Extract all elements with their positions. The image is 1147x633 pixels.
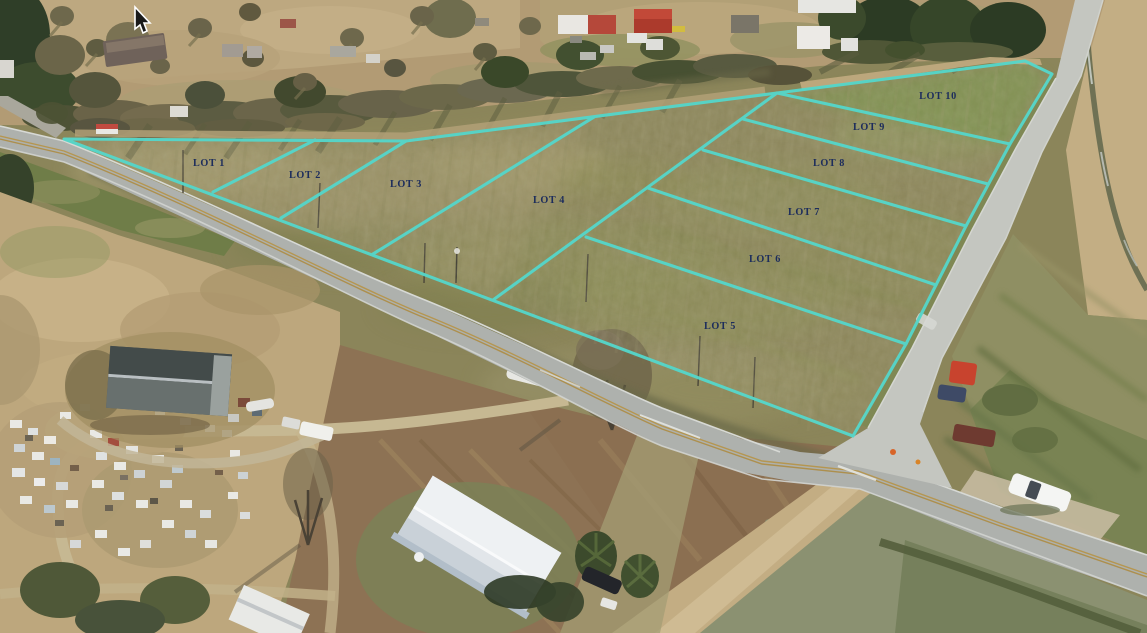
svg-text:LOT 10: LOT 10 (919, 91, 957, 102)
svg-text:LOT 4: LOT 4 (533, 195, 565, 206)
svg-text:LOT 6: LOT 6 (749, 254, 781, 265)
svg-text:LOT 8: LOT 8 (813, 158, 845, 169)
svg-text:LOT 3: LOT 3 (390, 179, 422, 190)
svg-text:LOT 5: LOT 5 (704, 321, 736, 332)
svg-text:LOT 9: LOT 9 (853, 122, 885, 133)
svg-text:LOT 7: LOT 7 (788, 207, 820, 218)
svg-text:LOT 2: LOT 2 (289, 170, 321, 181)
svg-text:LOT 1: LOT 1 (193, 158, 225, 169)
